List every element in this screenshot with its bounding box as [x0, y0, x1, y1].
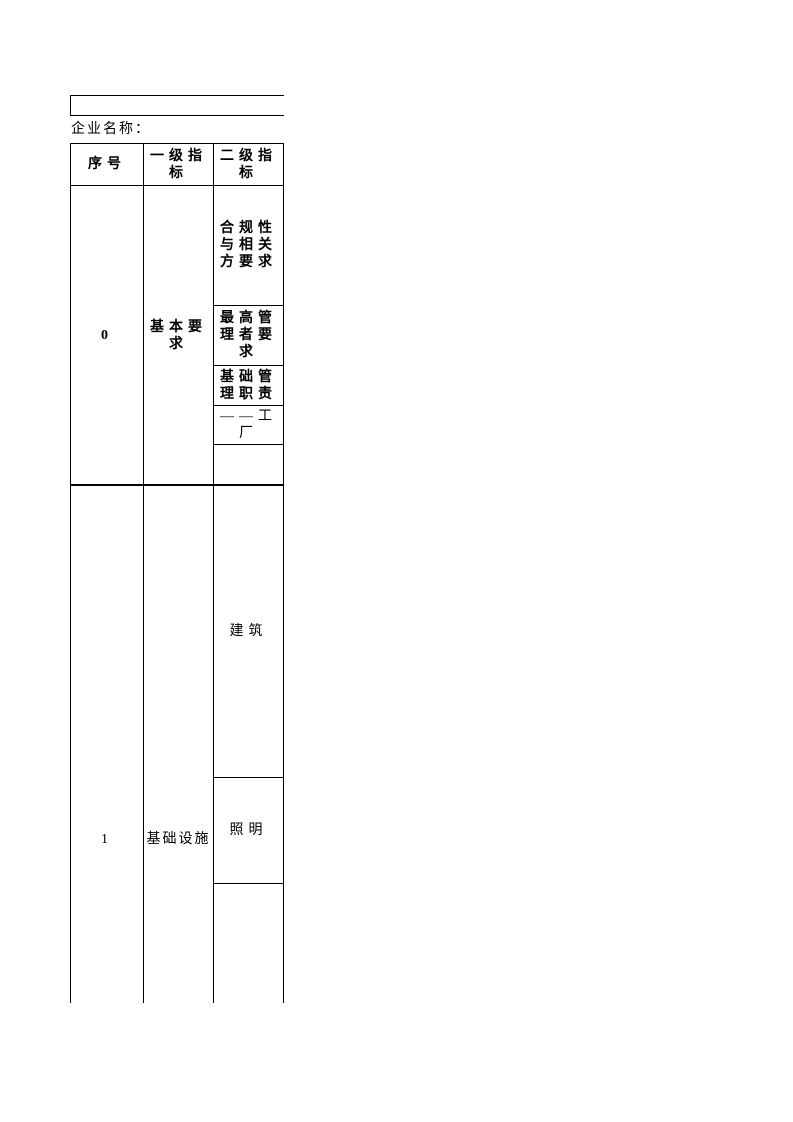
cell-row0-serial: 0	[70, 185, 144, 486]
cell-row0-level2-empty	[213, 444, 284, 486]
cell-row0-level2-top-management: 最高管 理者要 求	[213, 305, 284, 366]
cell-row0-level1: 基本要 求	[143, 185, 214, 486]
cell-row0-level2-factory: ——工 厂	[213, 405, 284, 445]
cell-row0-level2-compliance: 合规性 与相关 方要求	[213, 185, 284, 306]
cell-row1-level2-lighting: 照明	[213, 777, 284, 884]
header-serial-number: 序号	[70, 143, 144, 186]
header-level2-indicator: 二级指 标	[213, 143, 284, 186]
cell-row1-serial-value: 1	[71, 831, 143, 848]
header-level1-indicator: 一级指 标	[143, 143, 214, 186]
cell-row0-level2-basic-management-duty: 基础管 理职责	[213, 365, 284, 406]
cell-row1-level1-value: 基础设施	[144, 831, 213, 848]
cell-row1-level2-empty	[213, 883, 284, 1003]
cell-row1-serial: 1	[70, 485, 144, 1003]
cell-row1-level1: 基础设施	[143, 485, 214, 1003]
cell-row1-level2-building: 建筑	[213, 485, 284, 778]
company-name-label: 企业名称：	[71, 116, 284, 143]
top-empty-row	[70, 95, 284, 116]
